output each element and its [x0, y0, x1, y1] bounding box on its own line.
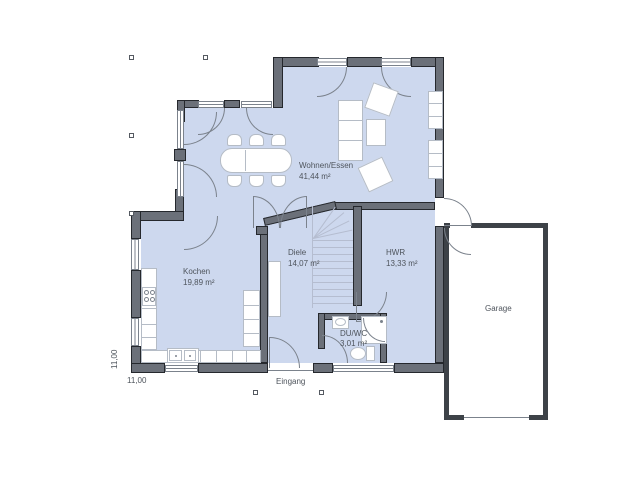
room-label-hwr: HWR 13,33 m² — [386, 247, 418, 269]
terrace-door — [317, 58, 347, 66]
dining-chair — [249, 134, 264, 146]
counter-division — [244, 305, 259, 306]
stove-burner — [150, 290, 155, 295]
dimension-bottom: 11,00 — [127, 375, 146, 386]
window — [177, 110, 184, 149]
room-area: 3,01 m² — [340, 339, 367, 349]
wall-segment — [224, 100, 240, 108]
hall-wardrobe — [268, 261, 281, 317]
counter-division — [200, 351, 201, 362]
door-leaf — [306, 196, 307, 228]
dining-chair — [271, 134, 286, 146]
coffee-table — [366, 119, 386, 146]
shelf-division — [429, 116, 442, 117]
wall-segment — [313, 363, 333, 373]
door-leaf — [269, 337, 270, 368]
stove-burner — [144, 290, 149, 295]
dining-chair — [249, 175, 264, 187]
counter-division — [142, 308, 156, 309]
dining-chair — [227, 134, 242, 146]
window — [165, 365, 198, 372]
dimension-left: 11,00 — [108, 343, 120, 369]
wall-segment — [131, 270, 141, 318]
kitchen-counter-bottom — [141, 350, 261, 363]
counter-division — [244, 333, 259, 334]
dining-chair — [227, 175, 242, 187]
terrace-door — [381, 58, 411, 66]
counter-division — [246, 351, 247, 362]
stove-burner — [150, 297, 155, 302]
sofa-cushion-line — [339, 120, 362, 121]
sink-drain — [189, 355, 191, 357]
wall-stairs — [353, 206, 362, 306]
terrace-door — [241, 101, 272, 108]
wall-segment — [174, 149, 186, 161]
table-division — [245, 150, 246, 171]
room-label-wc: DU/WC 3,01 m² — [340, 329, 367, 349]
wall-segment — [347, 57, 382, 67]
window — [131, 239, 139, 270]
counter-division — [244, 319, 259, 320]
shower-head — [380, 320, 383, 323]
wall-kitchen-hall — [260, 226, 268, 363]
room-label-hall: Diele 14,07 m² — [288, 247, 320, 269]
door-leaf — [444, 225, 472, 226]
exterior-door-swing — [444, 198, 472, 226]
room-label-garage: Garage — [485, 303, 512, 314]
wall-segment — [131, 363, 165, 373]
room-area: 13,33 m² — [386, 258, 418, 269]
wall-segment — [435, 226, 444, 363]
window — [333, 365, 394, 372]
grid-marker — [129, 55, 134, 60]
door-leaf — [253, 196, 254, 228]
room-name: Wohnen/Essen — [299, 160, 353, 171]
window — [131, 318, 139, 346]
garage-wall — [444, 223, 449, 420]
wall-segment — [394, 363, 444, 373]
grid-marker — [319, 390, 324, 395]
counter-division — [142, 324, 156, 325]
garage-wall — [444, 415, 464, 420]
wall-segment — [332, 202, 435, 210]
sofa — [338, 100, 363, 161]
garage-wall — [471, 223, 548, 228]
toilet-tank — [366, 346, 375, 361]
shelf-division — [429, 166, 442, 167]
room-name: HWR — [386, 247, 418, 258]
terrace-door — [198, 101, 224, 108]
floor-plan: Wohnen/Essen 41,44 m² Kochen 19,89 m² Di… — [0, 0, 640, 480]
room-name: Diele — [288, 247, 320, 258]
counter-division — [216, 351, 217, 362]
sofa-cushion-line — [339, 140, 362, 141]
dining-chair — [271, 175, 286, 187]
entrance-threshold — [268, 370, 313, 371]
wall-segment — [273, 57, 283, 108]
garage-door-line — [464, 417, 529, 418]
sink-drain — [175, 355, 177, 357]
room-label-kitchen: Kochen 19,89 m² — [183, 266, 215, 288]
washbasin-bowl — [335, 318, 346, 326]
shelf-unit — [428, 91, 443, 129]
shelf-division — [429, 103, 442, 104]
grid-marker — [129, 133, 134, 138]
grid-marker — [129, 211, 134, 216]
wall-segment — [198, 363, 268, 373]
dining-table — [220, 148, 292, 173]
grid-marker — [203, 55, 208, 60]
room-label-living: Wohnen/Essen 41,44 m² — [299, 160, 353, 182]
grid-marker — [253, 390, 258, 395]
door-leaf — [356, 292, 357, 322]
shelf-unit — [428, 140, 443, 179]
room-name: Kochen — [183, 266, 215, 277]
counter-division — [142, 337, 156, 338]
room-area: 19,89 m² — [183, 277, 215, 288]
room-area: 41,44 m² — [299, 171, 353, 182]
counter-division — [232, 351, 233, 362]
garage-wall — [543, 223, 548, 420]
room-area: 14,07 m² — [288, 258, 320, 269]
stove-burner — [144, 297, 149, 302]
entrance-label: Eingang — [276, 376, 305, 387]
shelf-division — [429, 153, 442, 154]
garage-wall — [529, 415, 548, 420]
window — [177, 161, 184, 197]
room-name: DU/WC — [340, 329, 367, 339]
